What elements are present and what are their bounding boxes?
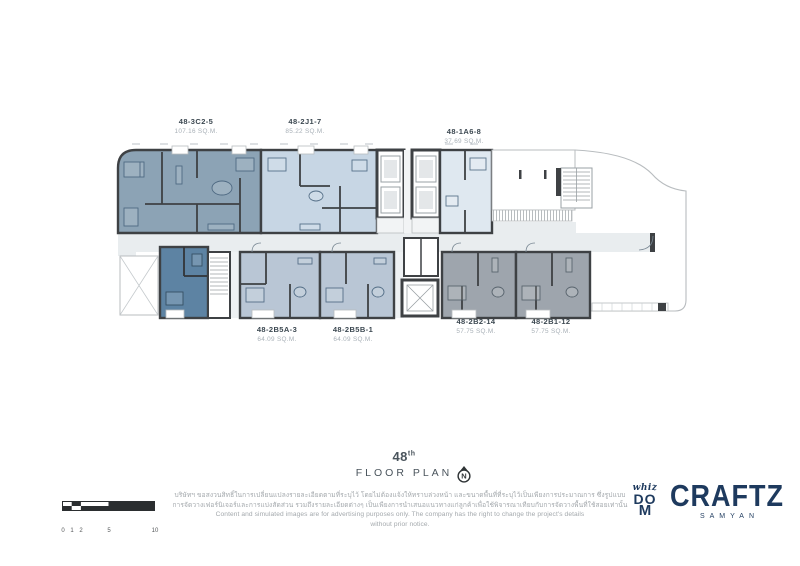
- whizdom-logo: whiz DO M: [629, 484, 661, 518]
- unit-48-2J1-7: [261, 150, 377, 233]
- scale-tick: 2: [79, 528, 82, 534]
- unit-id: 48-2B5B-1: [333, 325, 373, 334]
- elevator-core-right: [412, 150, 440, 233]
- unit-48-2B2-14: [442, 243, 516, 318]
- unit-area: 85.22 SQ.M.: [285, 128, 324, 135]
- stairs-bottom-left: [208, 252, 230, 318]
- floor-number-ordinal: th: [408, 451, 416, 458]
- unit-id: 48-2J1-7: [285, 117, 324, 126]
- unit-area: 37.69 SQ.M.: [444, 138, 483, 145]
- unit-label-48-1A6-8: 48-1A6-8 37.69 SQ.M.: [444, 127, 483, 145]
- void-shaft: [120, 256, 158, 315]
- unit-48-3C2-5: [118, 150, 261, 233]
- unit-id: 48-1A6-8: [444, 127, 483, 136]
- scale-tick: 1: [70, 528, 73, 534]
- floor-plan-label: FLOOR PLAN: [356, 467, 453, 479]
- unit-id: 48-2B2-14: [456, 317, 495, 326]
- title-block: 48th FLOOR PLAN: [356, 449, 453, 479]
- floor-plan-page: 48-3C2-5 107.16 SQ.M. 48-2J1-7 85.22 SQ.…: [0, 0, 800, 566]
- craftz-wordmark: CRAFTZ SAMYAN: [670, 479, 784, 520]
- brand-name: CRAFTZ: [670, 479, 784, 514]
- brand-logo: whiz DO M CRAFTZ SAMYAN: [629, 479, 784, 520]
- unit-dark-blue: [160, 247, 208, 318]
- unit-id: 48-2B5A-3: [257, 325, 297, 334]
- unit-label-48-2B5A-3: 48-2B5A-3 64.09 SQ.M.: [257, 325, 297, 343]
- unit-area: 57.75 SQ.M.: [456, 328, 495, 335]
- unit-label-48-3C2-5: 48-3C2-5 107.16 SQ.M.: [174, 117, 217, 135]
- disclaimer-line: การจัดวางเฟอร์นิเจอร์และการแบ่งสัดส่วน ร…: [170, 501, 630, 511]
- scale-bar: 0 1 2 5 10: [62, 498, 158, 520]
- unit-area: 64.09 SQ.M.: [333, 336, 373, 343]
- disclaimer-line: without prior notice.: [170, 520, 630, 530]
- unit-area: 57.75 SQ.M.: [531, 328, 570, 335]
- svg-text:N: N: [461, 472, 466, 481]
- unit-id: 48-2B1-12: [531, 317, 570, 326]
- unit-48-2B5A-3: [240, 243, 320, 318]
- floor-number-value: 48: [392, 449, 407, 464]
- unit-48-2B5B-1: [320, 243, 394, 318]
- brand-subtitle: SAMYAN: [670, 513, 784, 520]
- elevator-core-left: [377, 150, 404, 233]
- disclaimer-line: บริษัทฯ ขอสงวนสิทธิ์ในการเปลี่ยนแปลงรายล…: [170, 491, 630, 501]
- floor-number: 48th: [356, 449, 453, 464]
- unit-label-48-2B5B-1: 48-2B5B-1 64.09 SQ.M.: [333, 325, 373, 343]
- unit-label-48-2J1-7: 48-2J1-7 85.22 SQ.M.: [285, 117, 324, 135]
- north-compass-icon: N: [456, 466, 472, 484]
- scale-tick: 0: [61, 528, 64, 534]
- unit-label-48-2B2-14: 48-2B2-14 57.75 SQ.M.: [456, 317, 495, 335]
- scale-tick: 10: [152, 528, 159, 534]
- unit-area: 107.16 SQ.M.: [174, 128, 217, 135]
- stairs-top-right: [556, 168, 592, 208]
- scale-ticks: 0 1 2 5 10: [62, 516, 154, 524]
- unit-48-2B1-12: [516, 243, 590, 318]
- disclaimer-line: Content and simulated images are for adv…: [170, 510, 630, 520]
- service-core-mid: [402, 238, 438, 316]
- scale-tick: 5: [107, 528, 110, 534]
- unit-id: 48-3C2-5: [174, 117, 217, 126]
- louver-strip: [492, 210, 572, 221]
- unit-label-48-2B1-12: 48-2B1-12 57.75 SQ.M.: [531, 317, 570, 335]
- unit-area: 64.09 SQ.M.: [257, 336, 297, 343]
- disclaimer: บริษัทฯ ขอสงวนสิทธิ์ในการเปลี่ยนแปลงรายล…: [170, 491, 630, 529]
- unit-48-1A6-8: [440, 150, 492, 233]
